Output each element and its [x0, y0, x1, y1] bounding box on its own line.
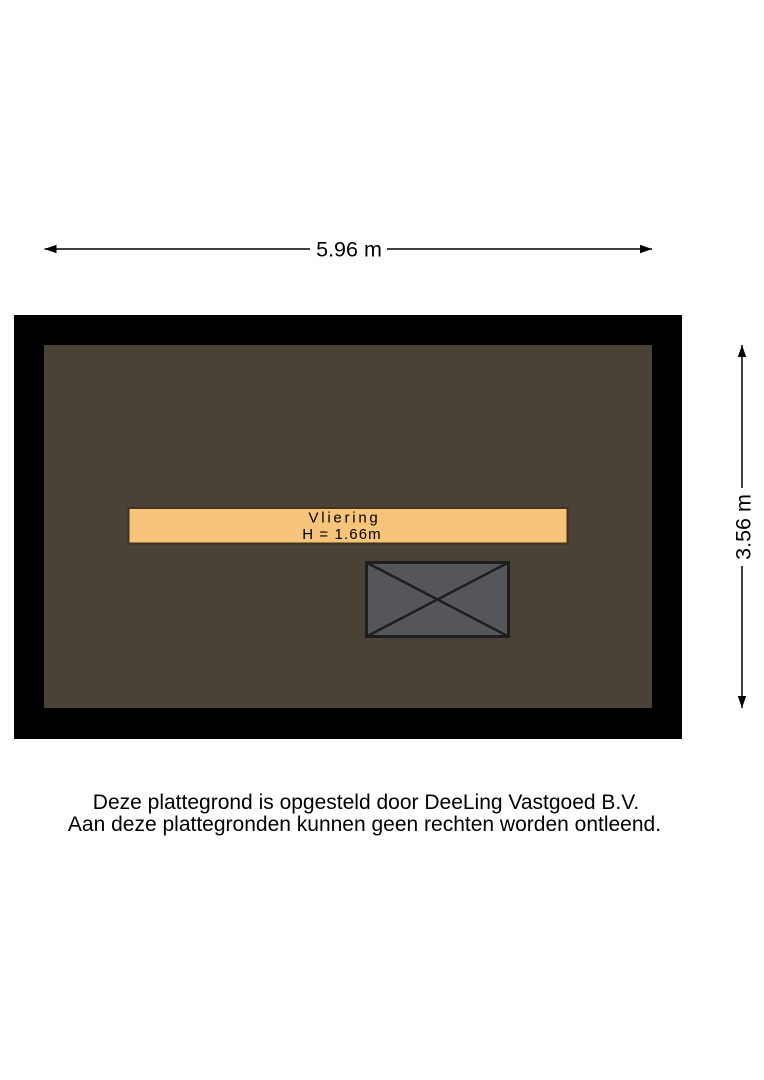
svg-text:5.96 m: 5.96 m	[316, 238, 382, 262]
svg-text:H = 1.66m: H = 1.66m	[302, 526, 382, 543]
svg-text:Deze plattegrond is opgesteld: Deze plattegrond is opgesteld door DeeLi…	[93, 791, 639, 814]
svg-text:Aan deze plattegronden kunnen: Aan deze plattegronden kunnen geen recht…	[68, 813, 661, 836]
svg-text:Vliering: Vliering	[308, 510, 380, 527]
svg-text:3.56 m: 3.56 m	[732, 494, 756, 560]
